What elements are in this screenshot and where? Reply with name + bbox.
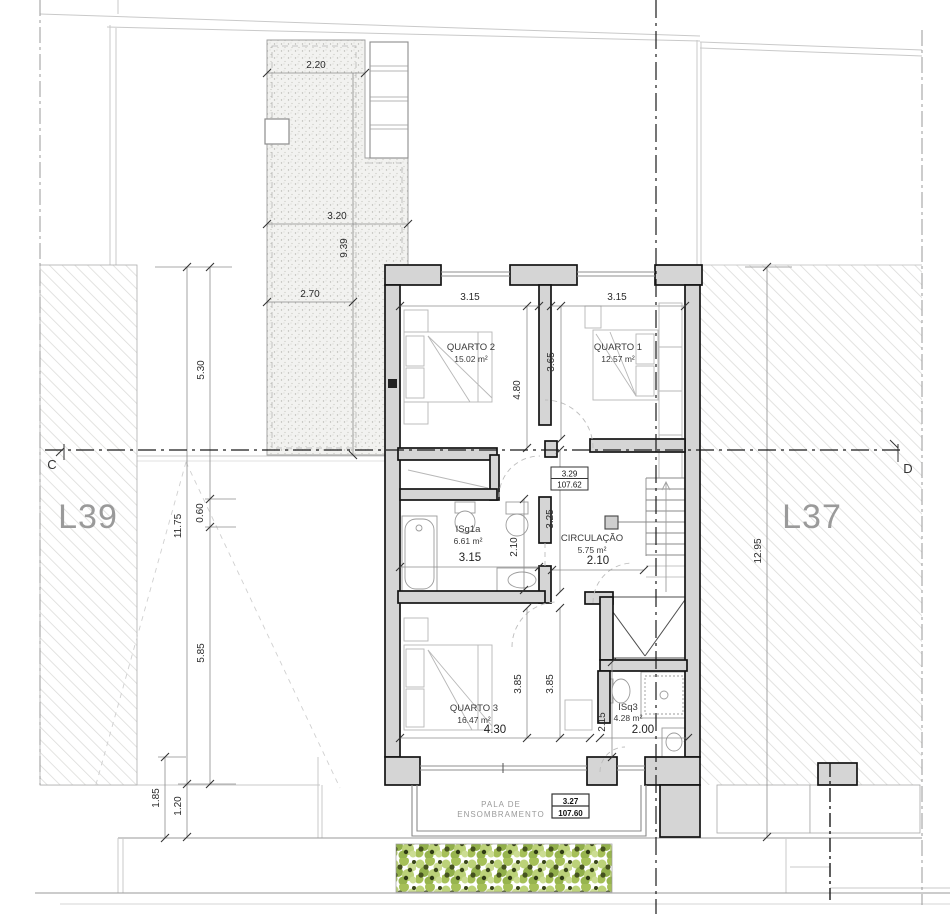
floor-plan-canvas: 3.29 107.62 3.27 107.60 L39 L37 C D QUAR… (0, 0, 950, 917)
dim-patio-low: 2.70 (300, 289, 320, 300)
dim-quarto1-width: 3.15 (607, 292, 627, 303)
level-elevation-upper: 107.62 (557, 481, 582, 490)
room-name-isg1a: ISg1a (456, 524, 482, 535)
room-area-quarto1: 12.57 m² (601, 354, 635, 364)
pergola-slats (370, 42, 408, 158)
room-name-quarto1: QUARTO 1 (594, 342, 642, 353)
dim-quarto1-depth: 3.65 (546, 352, 557, 372)
lot-label-l39: L39 (58, 498, 118, 536)
section-marker-d: D (903, 461, 912, 476)
room-area-circulacao: 5.75 m² (578, 545, 607, 555)
level-marker-lower: 3.27 107.60 (552, 794, 589, 818)
dim-circulacao-width: 2.10 (587, 555, 609, 567)
dim-quarto3-depth1: 3.85 (513, 674, 524, 694)
patio-pillar (265, 119, 289, 144)
dim-isg1a-width: 3.15 (459, 552, 481, 564)
floor-plan-drawing: 3.29 107.62 3.27 107.60 L39 L37 C D QUAR… (0, 0, 950, 917)
dim-left-bottom2: 1.20 (173, 796, 184, 816)
dim-quarto3-depth2: 3.85 (545, 674, 556, 694)
dim-quarto2-depth: 4.80 (512, 380, 523, 400)
stair-newel-post (605, 516, 618, 529)
lot-label-l37: L37 (782, 498, 842, 536)
hedge (396, 844, 612, 892)
dim-left-lower: 5.85 (196, 643, 207, 663)
dim-isq3-depth: 2.15 (597, 712, 608, 732)
room-name-quarto3: QUARTO 3 (450, 703, 498, 714)
section-marker-c: C (47, 457, 56, 472)
dim-left-small: 0.60 (195, 503, 206, 523)
dim-patio-mid: 3.20 (327, 211, 347, 222)
dim-left-upper: 5.30 (196, 360, 207, 380)
level-value-lower: 3.27 (563, 797, 579, 806)
level-elevation-lower: 107.60 (558, 809, 583, 818)
dim-isg1a-depth: 2.10 (509, 537, 520, 557)
room-area-isq3: 4.28 m² (614, 713, 643, 723)
level-marker-upper: 3.29 107.62 (551, 467, 588, 490)
canopy-label-line2: ENSOMBRAMENTO (457, 810, 545, 819)
lot-l37-hatch (700, 265, 922, 833)
level-value-upper: 3.29 (562, 470, 578, 479)
room-area-isg1a: 6.61 m² (454, 536, 483, 546)
wall-vent (388, 379, 397, 388)
dim-patio-top: 2.20 (306, 60, 326, 71)
dim-left-bottom1: 1.85 (151, 788, 162, 808)
room-name-circulacao: CIRCULAÇÃO (561, 533, 623, 544)
dim-mid-band: 3.25 (545, 509, 556, 529)
dim-right-total: 12.95 (753, 538, 764, 563)
dim-left-total: 11.75 (173, 513, 184, 538)
room-area-quarto2: 15.02 m² (454, 354, 488, 364)
dim-patio-height: 9.39 (339, 238, 350, 258)
room-name-isq3: ISq3 (618, 702, 638, 713)
dim-isq3-width: 2.00 (632, 724, 654, 736)
room-name-quarto2: QUARTO 2 (447, 342, 495, 353)
dim-quarto3-width: 4.30 (484, 724, 506, 736)
dim-quarto2-width: 3.15 (460, 292, 480, 303)
canopy-label-line1: PALA DE (481, 800, 521, 809)
